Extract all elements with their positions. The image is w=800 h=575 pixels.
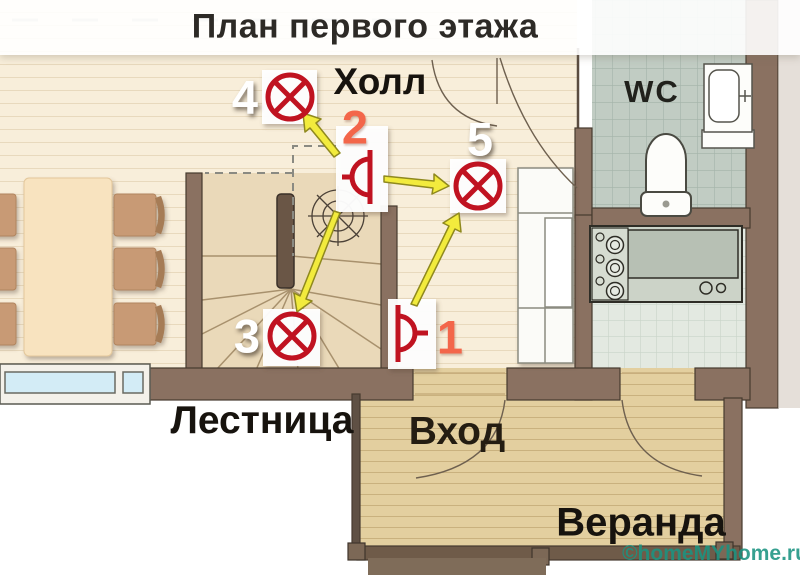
window-glass: [5, 372, 115, 393]
wall-right-outer: [778, 0, 800, 408]
stair-newel-wall: [277, 194, 294, 288]
room-label-veranda: Веранда: [556, 501, 726, 546]
veranda-step: [368, 558, 546, 575]
window-glass-small: [123, 372, 143, 393]
wall-bottom-left: [148, 368, 413, 400]
room-label-stairs: Лестница: [170, 399, 353, 443]
toilet: [641, 134, 691, 216]
room-label-entrance: Вход: [409, 410, 505, 454]
kitchen-cabinet: [518, 168, 573, 363]
stove-unit: [590, 226, 742, 302]
wall-wc-left: [575, 128, 592, 218]
page-title: План первого этажа: [192, 8, 539, 47]
wall-right: [746, 0, 778, 408]
switch-number-1: 1: [437, 310, 463, 365]
lamp-number-4: 4: [232, 70, 258, 125]
floor-plan-screenshot: План первого этажа Холл WC Лестница Вход…: [0, 0, 800, 575]
watermark: ©homeMYhome.ru: [622, 542, 800, 566]
wall-bottom-right: [695, 368, 750, 400]
lamp-number-3: 3: [234, 309, 260, 364]
veranda-post: [348, 543, 365, 560]
room-label-hall: Холл: [334, 61, 427, 103]
window: [0, 364, 150, 404]
dining-table: [24, 178, 112, 356]
room-label-wc: WC: [624, 74, 680, 110]
wall-bottom-middle: [507, 368, 620, 400]
switch-number-2: 2: [342, 100, 368, 155]
lamp-number-5: 5: [467, 112, 493, 167]
wall-veranda-right: [724, 398, 742, 558]
wall-stair-left: [186, 173, 202, 370]
wc-sink: [702, 64, 754, 148]
